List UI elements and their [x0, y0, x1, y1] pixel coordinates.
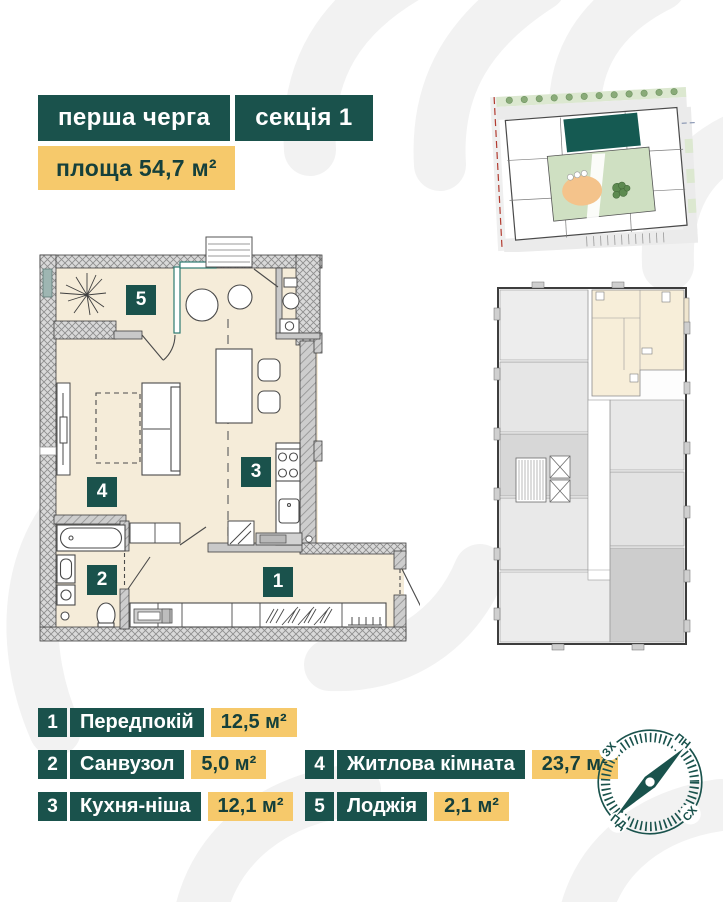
legend-item-1: 1 Передпокій 12,5 м²	[38, 708, 297, 737]
section-badge: секція 1	[235, 95, 372, 141]
room-badge-2: 2	[87, 565, 117, 595]
chair	[258, 391, 280, 413]
legend-item-3: 3 Кухня-ніша 12,1 м²	[38, 792, 293, 821]
legend-area: 12,5 м²	[211, 708, 297, 737]
legend-item-5: 5 Лоджія 2,1 м²	[305, 792, 509, 821]
small-sink	[284, 278, 297, 287]
highlighted-building	[563, 113, 641, 153]
total-area-badge: площа 54,7 м²	[38, 146, 235, 190]
apartment-floor-plan: 5 4 2 3 1	[30, 235, 420, 665]
legend-label: Санвузол	[70, 750, 184, 779]
room-badge-1: 1	[263, 567, 293, 597]
wardrobe-room4	[130, 523, 180, 543]
legend-number: 4	[305, 750, 334, 779]
pantry-door-symbol	[228, 521, 254, 545]
sofa-back	[171, 387, 180, 471]
legend-number: 3	[38, 792, 67, 821]
legend-label: Кухня-ніша	[70, 792, 201, 821]
legend-area: 2,1 м²	[434, 792, 509, 821]
legend-number: 5	[305, 792, 334, 821]
legend-number: 2	[38, 750, 67, 779]
flat-plan-page: перша черга секція 1 площа 54,7 м²	[0, 0, 723, 902]
legend-label: Передпокій	[70, 708, 204, 737]
legend-area: 5,0 м²	[191, 750, 266, 779]
phase-badge: перша черга	[38, 95, 230, 141]
site-plan-drawing	[490, 87, 698, 252]
legend-label: Житлова кімната	[337, 750, 525, 779]
wc-toilet-icon	[283, 293, 299, 309]
kitchen-counter	[276, 443, 300, 545]
room-badge-5: 5	[126, 285, 156, 315]
site-plan-map	[488, 84, 698, 252]
legend-label: Лоджія	[337, 792, 427, 821]
legend-item-2: 2 Санвузол 5,0 м²	[38, 750, 266, 779]
shaft	[206, 237, 252, 267]
hall-wardrobe	[130, 603, 386, 627]
round-chair-icon	[228, 285, 252, 309]
chair	[258, 359, 280, 381]
floor-drain-icon	[61, 612, 69, 620]
kitchen-sink-icon	[279, 499, 299, 523]
stairwell	[516, 458, 546, 502]
room-badge-3: 3	[241, 457, 271, 487]
compass-needle-icon	[611, 743, 689, 821]
legend-area: 12,1 м²	[208, 792, 294, 821]
armchair-icon	[186, 289, 218, 321]
legend-number: 1	[38, 708, 67, 737]
legend-item-4: 4 Житлова кімната 23,7 м²	[305, 750, 618, 779]
dining-table	[216, 349, 252, 423]
tv-stand	[57, 383, 70, 475]
room-badge-4: 4	[87, 477, 117, 507]
compass: ПН СХ ПД ЗХ	[592, 724, 708, 840]
header: перша черга секція 1 площа 54,7 м²	[38, 95, 373, 190]
building-key-plan	[492, 278, 692, 653]
